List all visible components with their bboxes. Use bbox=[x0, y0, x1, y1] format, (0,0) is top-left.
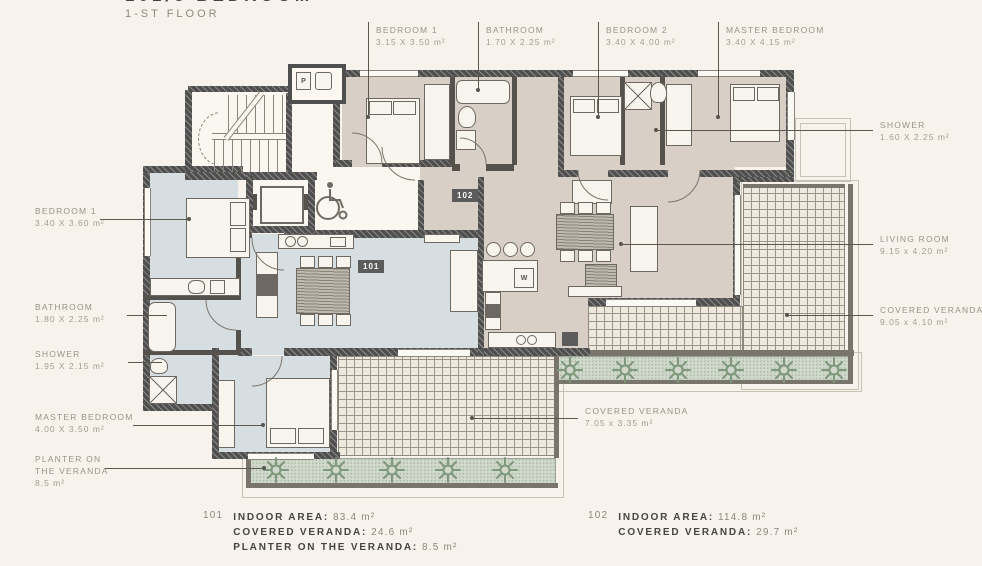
leader-line bbox=[478, 22, 479, 90]
room-label-name: COVERED VERANDA bbox=[585, 405, 689, 417]
room-label-name: BATHROOM bbox=[35, 301, 105, 313]
summary-row: COVERED VERANDA: 29.7 m² bbox=[618, 525, 798, 540]
summary-unit-102: 102 INDOOR AREA: 114.8 m² COVERED VERAND… bbox=[588, 510, 798, 540]
leader-dot bbox=[785, 313, 789, 317]
leader-dot bbox=[470, 416, 474, 420]
summary-row: PLANTER ON THE VERANDA: 8.5 m² bbox=[233, 540, 457, 555]
leader-dot bbox=[654, 128, 658, 132]
door-arcs bbox=[206, 133, 700, 386]
leader-line bbox=[127, 315, 167, 316]
room-label-dims: 3.40 X 3.60 m² bbox=[35, 217, 105, 229]
leader-dot bbox=[187, 217, 191, 221]
leader-dot bbox=[261, 423, 265, 427]
summary-rows: INDOOR AREA: 114.8 m² COVERED VERANDA: 2… bbox=[618, 510, 798, 540]
room-label: BEDROOM 1 3.15 X 3.50 m² bbox=[376, 24, 446, 48]
leader-line bbox=[368, 22, 369, 117]
summary-unit-number: 101 bbox=[203, 510, 223, 555]
summary-value: 114.8 m² bbox=[718, 512, 766, 523]
summary-value: 29.7 m² bbox=[756, 527, 798, 538]
leader-line bbox=[598, 22, 599, 117]
summary-label: COVERED VERANDA: bbox=[233, 527, 367, 538]
leader-dot bbox=[262, 466, 266, 470]
room-label-dims: 3.40 X 4.00 m² bbox=[606, 36, 676, 48]
leader-dot bbox=[619, 242, 623, 246]
room-label: BEDROOM 2 3.40 X 4.00 m² bbox=[606, 24, 676, 48]
room-label-name: PLANTER ON THE VERANDA bbox=[35, 453, 121, 477]
room-label-name: BEDROOM 1 bbox=[376, 24, 446, 36]
leader-dot bbox=[366, 115, 370, 119]
room-label-dims: 4.00 X 3.50 m² bbox=[35, 423, 134, 435]
room-label-dims: 9.05 x 4.10 m² bbox=[880, 316, 982, 328]
summary-unit-101: 101 INDOOR AREA: 83.4 m² COVERED VERANDA… bbox=[203, 510, 458, 555]
room-label: LIVING ROOM 9.15 x 4.20 m² bbox=[880, 233, 950, 257]
room-label-name: COVERED VERANDA bbox=[880, 304, 982, 316]
room-label-dims: 9.15 x 4.20 m² bbox=[880, 245, 950, 257]
leader-dot bbox=[596, 115, 600, 119]
room-label-dims: 1.80 X 2.25 m² bbox=[35, 313, 105, 325]
room-label: BATHROOM 1.70 X 2.25 m² bbox=[486, 24, 556, 48]
summary-label: PLANTER ON THE VERANDA: bbox=[233, 542, 418, 553]
room-label: SHOWER 1.95 X 2.15 m² bbox=[35, 348, 105, 372]
room-label-dims: 1.60 X 2.25 m² bbox=[880, 131, 950, 143]
leader-dot bbox=[476, 88, 480, 92]
leader-line bbox=[788, 315, 873, 316]
room-label: SHOWER 1.60 X 2.25 m² bbox=[880, 119, 950, 143]
room-label-dims: 1.95 X 2.15 m² bbox=[35, 360, 105, 372]
wheelchair-icon bbox=[317, 182, 347, 219]
summary-row: INDOOR AREA: 114.8 m² bbox=[618, 510, 798, 525]
summary-label: COVERED VERANDA: bbox=[618, 527, 752, 538]
room-label: COVERED VERANDA 7.05 x 3.35 m² bbox=[585, 405, 689, 429]
room-label-dims: 1.70 X 2.25 m² bbox=[486, 36, 556, 48]
summary-label: INDOOR AREA: bbox=[618, 512, 714, 523]
room-label-dims: 3.40 X 4.15 m² bbox=[726, 36, 825, 48]
leader-line bbox=[718, 22, 719, 117]
leader-line bbox=[100, 219, 189, 220]
room-label: MASTER BEDROOM 4.00 X 3.50 m² bbox=[35, 411, 134, 435]
plan-annotations bbox=[0, 0, 982, 566]
planter-plants bbox=[264, 358, 846, 482]
leader-line bbox=[133, 425, 263, 426]
floorplan-canvas: 101/3 BEDROOM 1-ST FLOOR bbox=[0, 0, 982, 566]
room-label: BEDROOM 1 3.40 X 3.60 m² bbox=[35, 205, 105, 229]
summary-label: INDOOR AREA: bbox=[233, 512, 329, 523]
leader-line bbox=[622, 244, 873, 245]
summary-value: 8.5 m² bbox=[422, 542, 458, 553]
summary-unit-number: 102 bbox=[588, 510, 608, 540]
room-label-dims: 3.15 X 3.50 m² bbox=[376, 36, 446, 48]
room-label-name: BEDROOM 2 bbox=[606, 24, 676, 36]
room-label-name: LIVING ROOM bbox=[880, 233, 950, 245]
summary-row: COVERED VERANDA: 24.6 m² bbox=[233, 525, 457, 540]
summary-rows: INDOOR AREA: 83.4 m² COVERED VERANDA: 24… bbox=[233, 510, 457, 555]
room-label-name: MASTER BEDROOM bbox=[35, 411, 134, 423]
leader-line bbox=[105, 468, 264, 469]
room-label-name: SHOWER bbox=[35, 348, 105, 360]
room-label-dims: 7.05 x 3.35 m² bbox=[585, 417, 689, 429]
summary-row: INDOOR AREA: 83.4 m² bbox=[233, 510, 457, 525]
room-label-name: BATHROOM bbox=[486, 24, 556, 36]
leader-line bbox=[128, 362, 162, 363]
summary-value: 24.6 m² bbox=[371, 527, 413, 538]
room-label: MASTER BEDROOM 3.40 X 4.15 m² bbox=[726, 24, 825, 48]
room-label-dims: 8.5 m² bbox=[35, 477, 121, 489]
room-label-name: MASTER BEDROOM bbox=[726, 24, 825, 36]
leader-line bbox=[472, 418, 578, 419]
room-label: PLANTER ON THE VERANDA 8.5 m² bbox=[35, 453, 121, 489]
summary-value: 83.4 m² bbox=[333, 512, 375, 523]
room-label-name: BEDROOM 1 bbox=[35, 205, 105, 217]
room-label: COVERED VERANDA 9.05 x 4.10 m² bbox=[880, 304, 982, 328]
room-label: BATHROOM 1.80 X 2.25 m² bbox=[35, 301, 105, 325]
leader-dot bbox=[716, 115, 720, 119]
room-label-name: SHOWER bbox=[880, 119, 950, 131]
leader-line bbox=[657, 130, 873, 131]
